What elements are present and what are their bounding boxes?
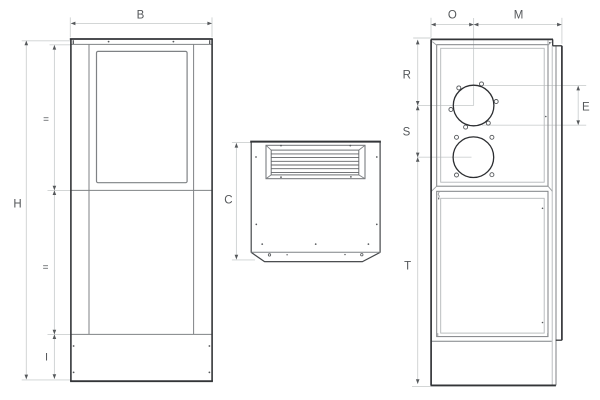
svg-text:O: O: [448, 10, 457, 22]
svg-text:I: I: [45, 352, 48, 364]
svg-text:R: R: [403, 70, 411, 82]
svg-text:T: T: [404, 261, 411, 273]
svg-text:S: S: [403, 127, 411, 139]
svg-text:C: C: [224, 195, 232, 207]
svg-text:M: M: [514, 10, 524, 22]
svg-text:=: =: [43, 114, 49, 125]
svg-text:E: E: [582, 101, 590, 113]
svg-text:=: =: [43, 262, 49, 273]
svg-text:B: B: [137, 10, 145, 22]
svg-text:H: H: [13, 199, 21, 211]
